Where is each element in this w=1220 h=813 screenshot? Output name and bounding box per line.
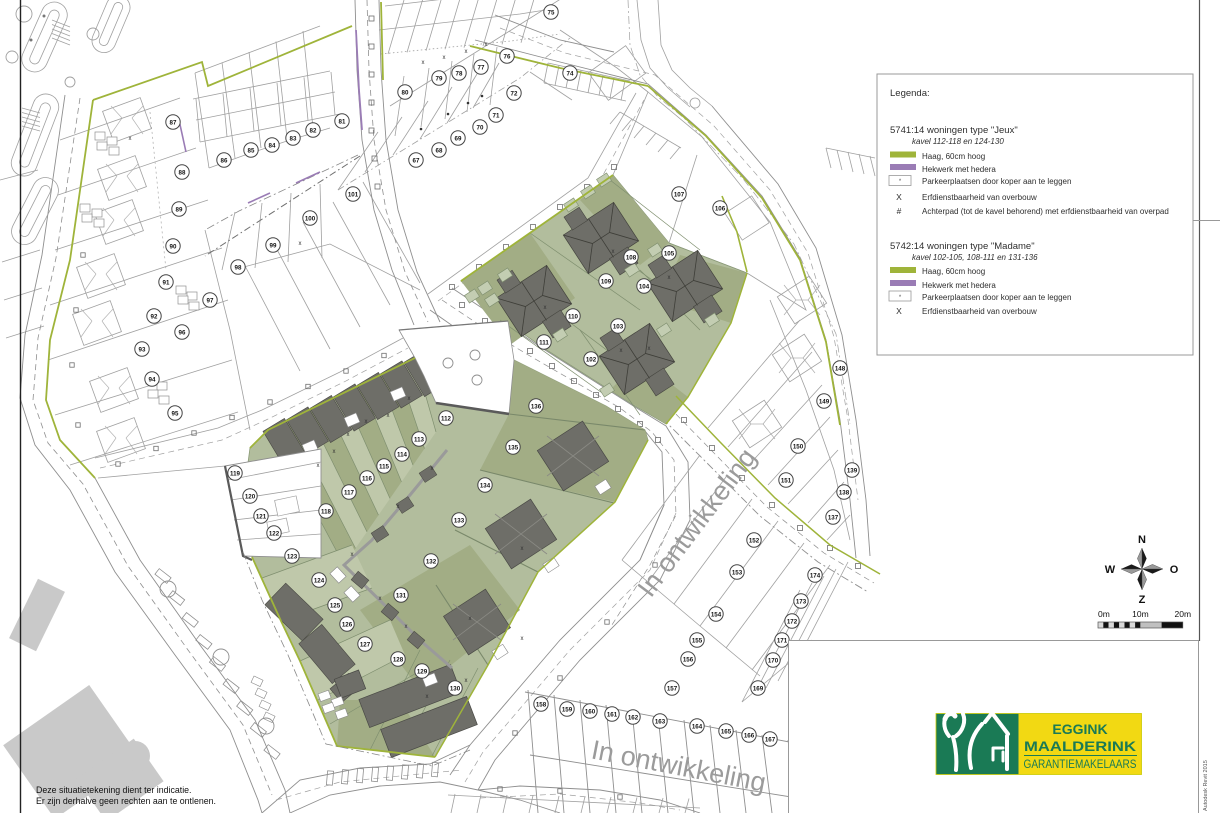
svg-text:100: 100 <box>305 215 316 222</box>
svg-text:117: 117 <box>344 489 355 496</box>
svg-text:109: 109 <box>601 278 612 285</box>
svg-text:x: x <box>422 60 425 66</box>
svg-text:EGGINK: EGGINK <box>1052 721 1107 737</box>
svg-text:90: 90 <box>170 243 177 250</box>
svg-text:10m: 10m <box>1132 609 1149 619</box>
svg-text:135: 135 <box>508 444 519 451</box>
svg-text:152: 152 <box>749 537 760 544</box>
svg-text:x: x <box>612 249 615 255</box>
svg-text:162: 162 <box>628 714 639 721</box>
svg-text:77: 77 <box>478 64 485 71</box>
svg-text:Legenda:: Legenda: <box>890 88 930 99</box>
svg-text:5741:14 woningen type "Jeux": 5741:14 woningen type "Jeux" <box>890 125 1018 136</box>
svg-text:O: O <box>1170 564 1179 576</box>
svg-text:X: X <box>896 192 902 202</box>
svg-text:74: 74 <box>567 70 574 77</box>
svg-text:159: 159 <box>562 706 573 713</box>
svg-text:172: 172 <box>787 618 798 625</box>
svg-text:96: 96 <box>179 329 186 336</box>
svg-text:122: 122 <box>269 530 280 537</box>
svg-text:125: 125 <box>330 602 341 609</box>
svg-text:95: 95 <box>172 410 179 417</box>
svg-text:x: x <box>620 348 623 354</box>
svg-text:134: 134 <box>480 482 491 489</box>
svg-text:x: x <box>431 466 434 472</box>
svg-text:132: 132 <box>426 558 437 565</box>
svg-text:157: 157 <box>667 685 678 692</box>
svg-text:71: 71 <box>493 112 500 119</box>
svg-text:N: N <box>1138 534 1146 546</box>
svg-text:Autodesk Revit 2015: Autodesk Revit 2015 <box>1203 760 1209 811</box>
svg-text:W: W <box>1105 564 1116 576</box>
svg-text:79: 79 <box>436 75 443 82</box>
svg-text:165: 165 <box>721 728 732 735</box>
svg-text:92: 92 <box>151 313 158 320</box>
svg-text:113: 113 <box>414 436 425 443</box>
svg-text:x: x <box>668 275 671 281</box>
svg-text:99: 99 <box>270 242 277 249</box>
svg-text:84: 84 <box>269 142 276 149</box>
svg-text:173: 173 <box>796 598 807 605</box>
svg-text:Er zijn derhalve geen rechten: Er zijn derhalve geen rechten aan te ont… <box>36 796 216 806</box>
svg-text:#: # <box>897 206 902 216</box>
svg-text:104: 104 <box>639 283 650 290</box>
svg-text:Haag, 60cm hoog: Haag, 60cm hoog <box>922 267 985 276</box>
svg-text:136: 136 <box>531 403 542 410</box>
svg-text:72: 72 <box>511 90 518 97</box>
svg-text:112: 112 <box>441 415 452 422</box>
svg-text:89: 89 <box>176 206 183 213</box>
svg-text:x: x <box>379 596 382 602</box>
svg-text:x: x <box>397 504 400 510</box>
svg-text:Parkeerplaatsen door koper aan: Parkeerplaatsen door koper aan te leggen <box>922 293 1071 302</box>
svg-text:120: 120 <box>245 493 256 500</box>
svg-text:x: x <box>465 678 468 684</box>
svg-text:GARANTIEMAKELAARS: GARANTIEMAKELAARS <box>1024 759 1137 771</box>
svg-text:88: 88 <box>179 169 186 176</box>
svg-text:x: x <box>521 636 524 642</box>
svg-text:148: 148 <box>835 365 846 372</box>
svg-text:Achterpad (tot de kavel behore: Achterpad (tot de kavel behorend) met er… <box>922 207 1169 216</box>
svg-text:X: X <box>896 306 902 316</box>
svg-text:116: 116 <box>362 475 373 482</box>
svg-text:0m: 0m <box>1098 609 1110 619</box>
svg-text:98: 98 <box>235 264 242 271</box>
svg-text:Haag, 60cm hoog: Haag, 60cm hoog <box>922 152 985 161</box>
svg-text:124: 124 <box>314 577 325 584</box>
svg-text:78: 78 <box>456 70 463 77</box>
svg-text:128: 128 <box>393 656 404 663</box>
svg-text:80: 80 <box>402 89 409 96</box>
svg-text:75: 75 <box>548 9 555 16</box>
svg-text:67: 67 <box>413 157 420 164</box>
svg-text:161: 161 <box>607 711 618 718</box>
svg-text:83: 83 <box>290 135 297 142</box>
svg-text:149: 149 <box>819 398 830 405</box>
svg-text:115: 115 <box>379 463 390 470</box>
svg-text:87: 87 <box>170 119 177 126</box>
svg-text:x: x <box>465 49 468 55</box>
svg-text:163: 163 <box>655 718 666 725</box>
svg-text:126: 126 <box>342 621 353 628</box>
svg-text:114: 114 <box>397 451 408 458</box>
svg-text:x: x <box>351 552 354 558</box>
svg-text:138: 138 <box>839 489 850 496</box>
svg-text:139: 139 <box>847 467 858 474</box>
svg-text:110: 110 <box>568 313 579 320</box>
svg-text:MAALDERINK: MAALDERINK <box>1024 738 1136 754</box>
svg-text:x: x <box>521 546 524 552</box>
svg-text:111: 111 <box>539 339 549 346</box>
svg-text:127: 127 <box>360 641 371 648</box>
svg-text:x: x <box>365 419 368 425</box>
svg-text:69: 69 <box>455 135 462 142</box>
svg-text:158: 158 <box>536 701 547 708</box>
svg-text:kavel 102-105, 108-111 en 131-: kavel 102-105, 108-111 en 131-136 <box>912 253 1038 262</box>
svg-text:Hekwerk met hedera: Hekwerk met hedera <box>922 281 996 290</box>
svg-text:133: 133 <box>454 517 465 524</box>
svg-text:Parkeerplaatsen door koper aan: Parkeerplaatsen door koper aan te leggen <box>922 177 1071 186</box>
svg-text:121: 121 <box>256 513 267 520</box>
svg-text:x: x <box>426 694 429 700</box>
svg-text:155: 155 <box>692 637 703 644</box>
svg-text:x: x <box>469 616 472 622</box>
svg-text:85: 85 <box>248 147 255 154</box>
svg-text:170: 170 <box>768 657 779 664</box>
svg-text:97: 97 <box>207 297 214 304</box>
svg-text:160: 160 <box>585 708 596 715</box>
svg-text:Deze situatietekening dient te: Deze situatietekening dient ter indicati… <box>36 785 192 795</box>
svg-text:kavel 112-118 en 124-130: kavel 112-118 en 124-130 <box>912 137 1004 146</box>
svg-text:171: 171 <box>777 637 788 644</box>
svg-text:131: 131 <box>396 592 407 599</box>
svg-text:106: 106 <box>715 205 726 212</box>
svg-text:x: x <box>299 241 302 247</box>
svg-text:94: 94 <box>149 376 156 383</box>
svg-text:x: x <box>333 449 336 455</box>
svg-text:119: 119 <box>230 470 241 477</box>
svg-text:137: 137 <box>828 514 839 521</box>
svg-text:129: 129 <box>417 668 428 675</box>
svg-text:93: 93 <box>139 346 146 353</box>
svg-text:105: 105 <box>664 250 675 257</box>
svg-text:20m: 20m <box>1175 609 1192 619</box>
svg-text:x: x <box>129 136 132 142</box>
svg-text:156: 156 <box>683 656 694 663</box>
svg-text:x: x <box>544 305 547 311</box>
svg-text:70: 70 <box>477 124 484 131</box>
svg-text:174: 174 <box>810 572 821 579</box>
svg-text:86: 86 <box>221 157 228 164</box>
svg-text:Erfdienstbaarheid van overbouw: Erfdienstbaarheid van overbouw <box>922 307 1037 316</box>
svg-text:151: 151 <box>781 477 792 484</box>
svg-text:Z: Z <box>1139 594 1146 606</box>
svg-text:102: 102 <box>586 356 597 363</box>
svg-text:153: 153 <box>732 569 743 576</box>
svg-text:130: 130 <box>450 685 461 692</box>
svg-text:x: x <box>485 42 488 48</box>
svg-text:118: 118 <box>321 508 332 515</box>
svg-text:x: x <box>405 624 408 630</box>
svg-text:x: x <box>648 346 651 352</box>
svg-text:Erfdienstbaarheid van overbouw: Erfdienstbaarheid van overbouw <box>922 193 1037 202</box>
svg-text:82: 82 <box>310 127 317 134</box>
svg-text:76: 76 <box>504 53 511 60</box>
svg-text:68: 68 <box>436 147 443 154</box>
svg-text:5742:14 woningen type "Madame": 5742:14 woningen type "Madame" <box>890 241 1035 252</box>
svg-text:Hekwerk met hedera: Hekwerk met hedera <box>922 165 996 174</box>
svg-text:81: 81 <box>339 118 346 125</box>
svg-text:107: 107 <box>674 191 685 198</box>
svg-text:164: 164 <box>692 723 703 730</box>
svg-text:166: 166 <box>744 732 755 739</box>
svg-text:108: 108 <box>626 254 637 261</box>
svg-text:103: 103 <box>613 323 624 330</box>
svg-text:x: x <box>317 463 320 469</box>
svg-text:154: 154 <box>711 611 722 618</box>
svg-text:x: x <box>347 432 350 438</box>
svg-text:x: x <box>443 55 446 61</box>
svg-text:101: 101 <box>348 191 359 198</box>
svg-text:167: 167 <box>765 736 776 743</box>
svg-text:169: 169 <box>753 685 764 692</box>
svg-text:123: 123 <box>287 553 298 560</box>
svg-text:150: 150 <box>793 443 804 450</box>
svg-text:x: x <box>387 413 390 419</box>
svg-text:x: x <box>408 396 411 402</box>
svg-text:91: 91 <box>163 279 170 286</box>
